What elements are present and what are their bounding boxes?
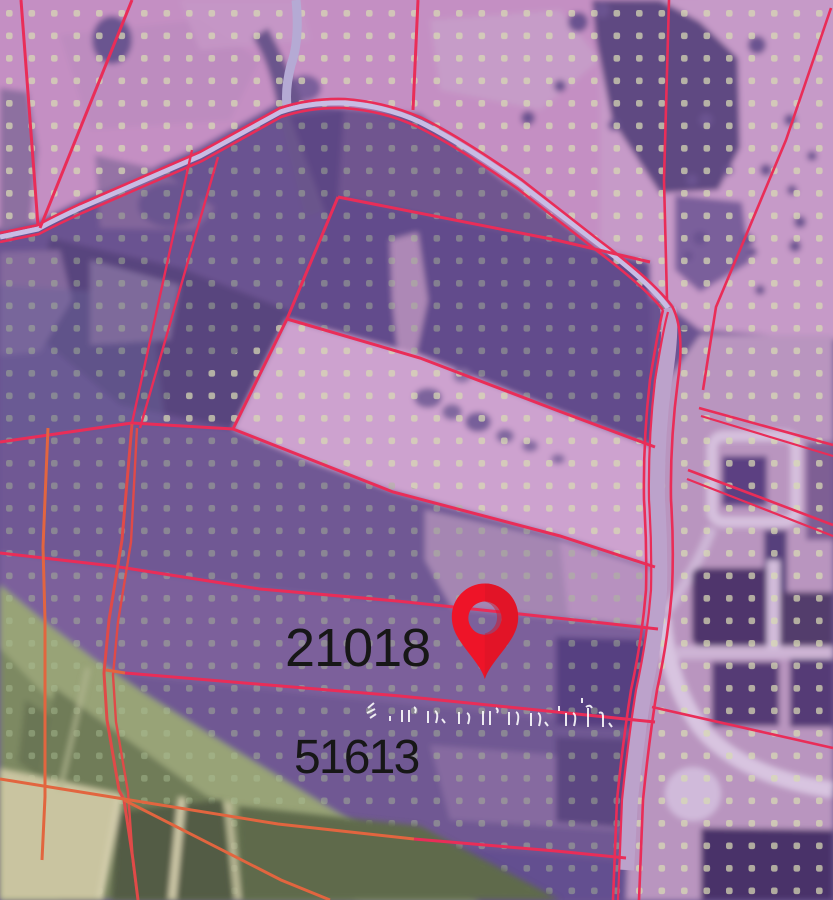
svg-text:21018: 21018: [285, 618, 430, 678]
svg-text:51613: 51613: [294, 731, 419, 784]
